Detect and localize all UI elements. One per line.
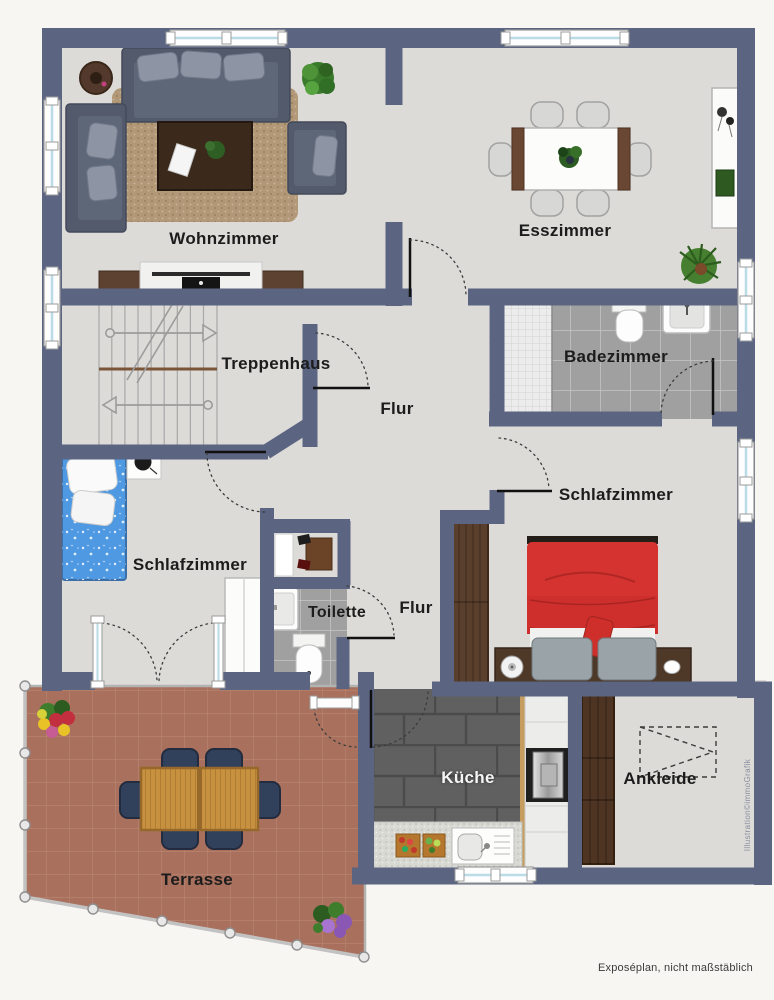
single-bed-blue xyxy=(62,448,126,580)
stove-oven xyxy=(526,748,568,802)
room-label-schlafzimmer-rechts: Schlafzimmer xyxy=(559,485,673,505)
hall-wardrobe xyxy=(452,520,488,686)
terrace-table xyxy=(141,768,258,830)
vegetable-crates xyxy=(396,834,445,857)
pillow xyxy=(598,638,656,680)
room-label-ankleide: Ankleide xyxy=(623,769,696,789)
wardrobe-white xyxy=(225,578,263,684)
room-label-flur-unten: Flur xyxy=(399,598,432,618)
tv-icon xyxy=(152,272,250,276)
window-wohnzimmer-left xyxy=(44,97,60,195)
room-label-schlafzimmer-links: Schlafzimmer xyxy=(133,555,247,575)
sideboard xyxy=(712,88,738,228)
window-badezimmer-right xyxy=(738,259,754,341)
armchair xyxy=(288,122,346,194)
disclaimer-text: Exposéplan, nicht maßstäblich xyxy=(598,962,753,974)
coffee-table xyxy=(158,122,252,190)
sofa-two-seat xyxy=(66,104,126,232)
room-label-wohnzimmer: Wohnzimmer xyxy=(169,229,278,249)
kitchen-sink xyxy=(452,828,514,864)
room-label-esszimmer: Esszimmer xyxy=(519,221,611,241)
phone-icon xyxy=(664,661,680,674)
room-label-flur-oben: Flur xyxy=(380,399,413,419)
window-wohnzimmer-top xyxy=(166,30,287,46)
room-label-terrasse: Terrasse xyxy=(161,870,233,890)
room-label-treppenhaus: Treppenhaus xyxy=(221,354,330,374)
window-esszimmer-top xyxy=(501,30,629,46)
illustration-credit: Illustration©immoGrafik xyxy=(743,740,755,870)
floorplan-page: Wohnzimmer Esszimmer Treppenhaus Flur Ba… xyxy=(0,0,774,1000)
wardrobe-dark xyxy=(582,692,614,864)
room-label-kueche: Küche xyxy=(441,768,494,788)
window-schlafzimmerR-right xyxy=(738,439,754,522)
room-label-toilette: Toilette xyxy=(308,604,366,622)
window-treppenhaus-left xyxy=(44,267,60,349)
terrace-door xyxy=(310,696,359,709)
pillow xyxy=(532,638,592,680)
alcove-shelf xyxy=(275,534,293,576)
room-label-badezimmer: Badezimmer xyxy=(564,347,668,367)
potted-plant-icon xyxy=(302,62,335,95)
sofa-three-seat xyxy=(122,48,290,122)
dining-table xyxy=(512,128,630,190)
window-kueche-bottom xyxy=(455,867,536,883)
